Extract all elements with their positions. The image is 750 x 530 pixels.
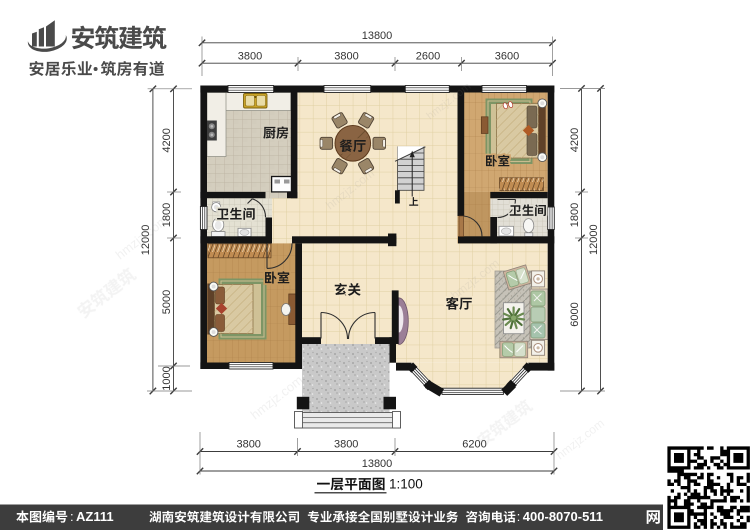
- svg-text:1800: 1800: [569, 203, 581, 227]
- svg-text:1:100: 1:100: [389, 477, 423, 492]
- svg-text:3600: 3600: [495, 50, 519, 62]
- svg-text:400-8070-511: 400-8070-511: [523, 509, 603, 524]
- svg-text:4200: 4200: [161, 128, 173, 152]
- svg-text:1000: 1000: [161, 366, 173, 390]
- svg-text:4200: 4200: [569, 128, 581, 152]
- svg-text:5000: 5000: [161, 290, 173, 314]
- svg-text:3800: 3800: [334, 439, 358, 451]
- svg-text:6000: 6000: [569, 302, 581, 326]
- svg-text:3800: 3800: [238, 50, 262, 62]
- svg-text:3800: 3800: [236, 439, 260, 451]
- svg-text:2600: 2600: [416, 50, 440, 62]
- svg-text:AZ111: AZ111: [76, 509, 114, 524]
- svg-text:3800: 3800: [334, 50, 358, 62]
- svg-text::: :: [70, 509, 74, 524]
- svg-text:13800: 13800: [362, 458, 393, 470]
- svg-text:13800: 13800: [362, 30, 393, 42]
- svg-text::: :: [517, 510, 521, 524]
- svg-text:12000: 12000: [588, 224, 600, 255]
